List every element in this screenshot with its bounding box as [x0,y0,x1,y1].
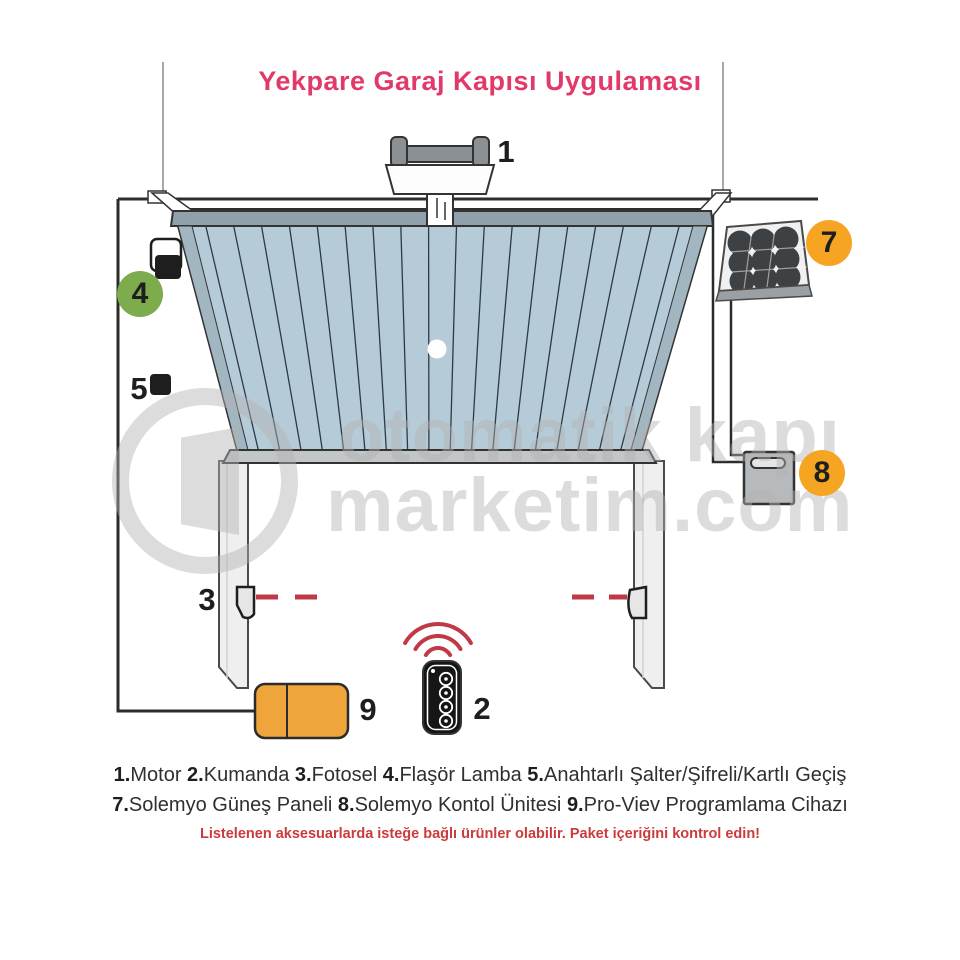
badge-flasher: 4 [117,271,163,317]
label-remote: 2 [464,691,500,727]
badge-control: 8 [799,450,845,496]
garage-door-application-diagram: Yekpare Garaj Kapısı Uygulaması [0,0,960,960]
label-proview: 9 [350,692,386,728]
label-keyswitch: 5 [121,371,157,407]
photocell-right-icon [628,587,646,618]
legend: 1.Motor 2.Kumanda 3.Fotosel 4.Flaşör Lam… [70,760,890,843]
label-motor: 1 [488,134,524,170]
legend-item: 7.Solemyo Güneş Paneli [112,794,332,816]
right-post [634,461,664,688]
control-unit-icon [744,452,794,504]
label-photocell: 3 [189,582,225,618]
garage-door-icon [171,211,713,463]
legend-note: Listelenen aksesuarlarda isteğe bağlı ür… [70,825,890,843]
legend-item: 9.Pro-Viev Programlama Cihazı [567,794,848,816]
solar-panel-icon [716,221,812,301]
legend-item: 5.Anahtarlı Şalter/Şifreli/Kartlı Geçiş [527,764,846,786]
legend-item: 1.Motor [114,764,182,786]
legend-item: 2.Kumanda [187,764,289,786]
door-bottom-bar [223,450,656,463]
remote-waves-icon [405,624,471,655]
badge-solar: 7 [806,220,852,266]
legend-item: 4.Flaşör Lamba [383,764,522,786]
flasher-lamp-icon [151,239,181,279]
door-handle-dot [428,340,447,359]
wire-solar-to-control [731,299,746,455]
legend-item: 8.Solemyo Kontol Ünitesi [338,794,561,816]
proview-device-icon [255,684,348,738]
legend-item: 3.Fotosel [295,764,377,786]
left-post [219,461,248,688]
remote-icon [423,661,461,734]
